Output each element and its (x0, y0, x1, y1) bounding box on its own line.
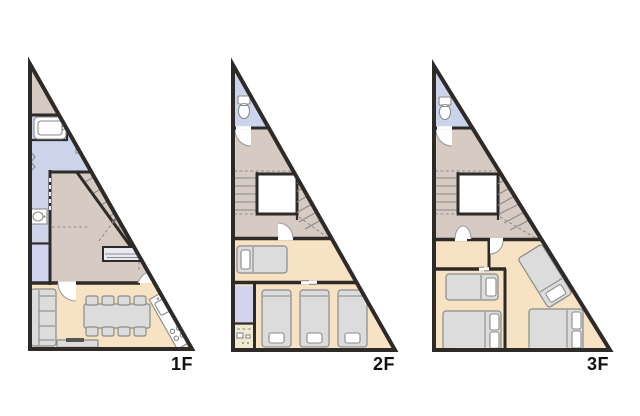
sofa-icon (31, 289, 56, 346)
double-bed-icon (529, 309, 583, 350)
single-bed-icon (300, 290, 329, 347)
single-bed-icon (262, 290, 291, 347)
floorplan-canvas: 1F 2F 3F (0, 0, 640, 416)
washbasin-icon (31, 209, 47, 224)
floor-label-2f: 2F (355, 354, 395, 375)
dining-table-icon (84, 304, 150, 328)
room-hallway-stairs (50, 172, 170, 283)
single-bed-icon (446, 274, 498, 300)
double-bed-icon (443, 311, 501, 350)
floor-plan-2f (231, 63, 395, 350)
floorplan-drawing (0, 0, 640, 416)
single-bed-icon (237, 246, 287, 273)
floor-label-3f: 3F (569, 354, 609, 375)
floor-plan-3f (432, 64, 612, 350)
single-bed-icon (338, 290, 367, 347)
floor-label-1f: 1F (153, 354, 193, 375)
toilet-icon (238, 96, 250, 119)
floor-plan-1f (28, 62, 198, 351)
room-closet (234, 286, 253, 322)
toilet-icon (439, 97, 451, 120)
